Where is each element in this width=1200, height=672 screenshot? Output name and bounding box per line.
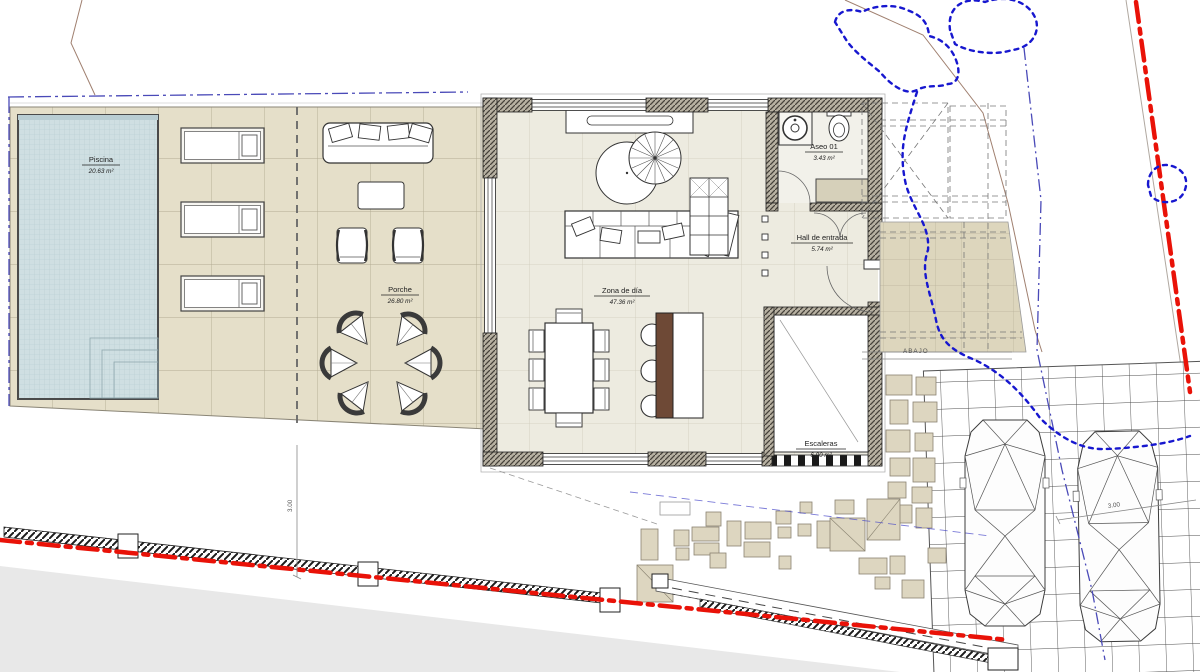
entry-terrace	[862, 103, 1026, 359]
room-area: 26.80 m²	[387, 298, 414, 305]
room-name: Zona de día	[602, 286, 643, 295]
room-name: Aseo 01	[810, 142, 838, 151]
porch-sofa	[323, 123, 433, 163]
sun-loungers	[181, 128, 264, 311]
room-name: Escaleras	[805, 439, 838, 448]
room-name: Hall de entrada	[797, 233, 849, 242]
kitchen-island	[641, 313, 703, 418]
room-area: 5.74 m²	[811, 246, 833, 253]
room-area: 6.00 m²	[810, 452, 832, 459]
shower-mat	[816, 179, 868, 202]
room-area: 3.43 m²	[813, 155, 835, 162]
abajo-label: ABAJO	[903, 348, 929, 355]
floor-plan: 3.00 3.00 Piscina 20.63 m² Porche 26.80 …	[0, 0, 1200, 672]
room-area: 47.36 m²	[610, 299, 636, 306]
dimension-fence-label: 3.00	[287, 499, 294, 512]
room-name: Piscina	[89, 155, 114, 164]
car-left	[960, 420, 1049, 626]
bathroom-sink	[779, 112, 812, 145]
porch-coffee-table	[358, 182, 404, 209]
spiral-element	[629, 132, 681, 184]
room-area: 20.63 m²	[88, 168, 115, 175]
car-right	[1072, 431, 1165, 643]
shelf-unit	[690, 178, 728, 255]
room-name: Porche	[388, 285, 412, 294]
